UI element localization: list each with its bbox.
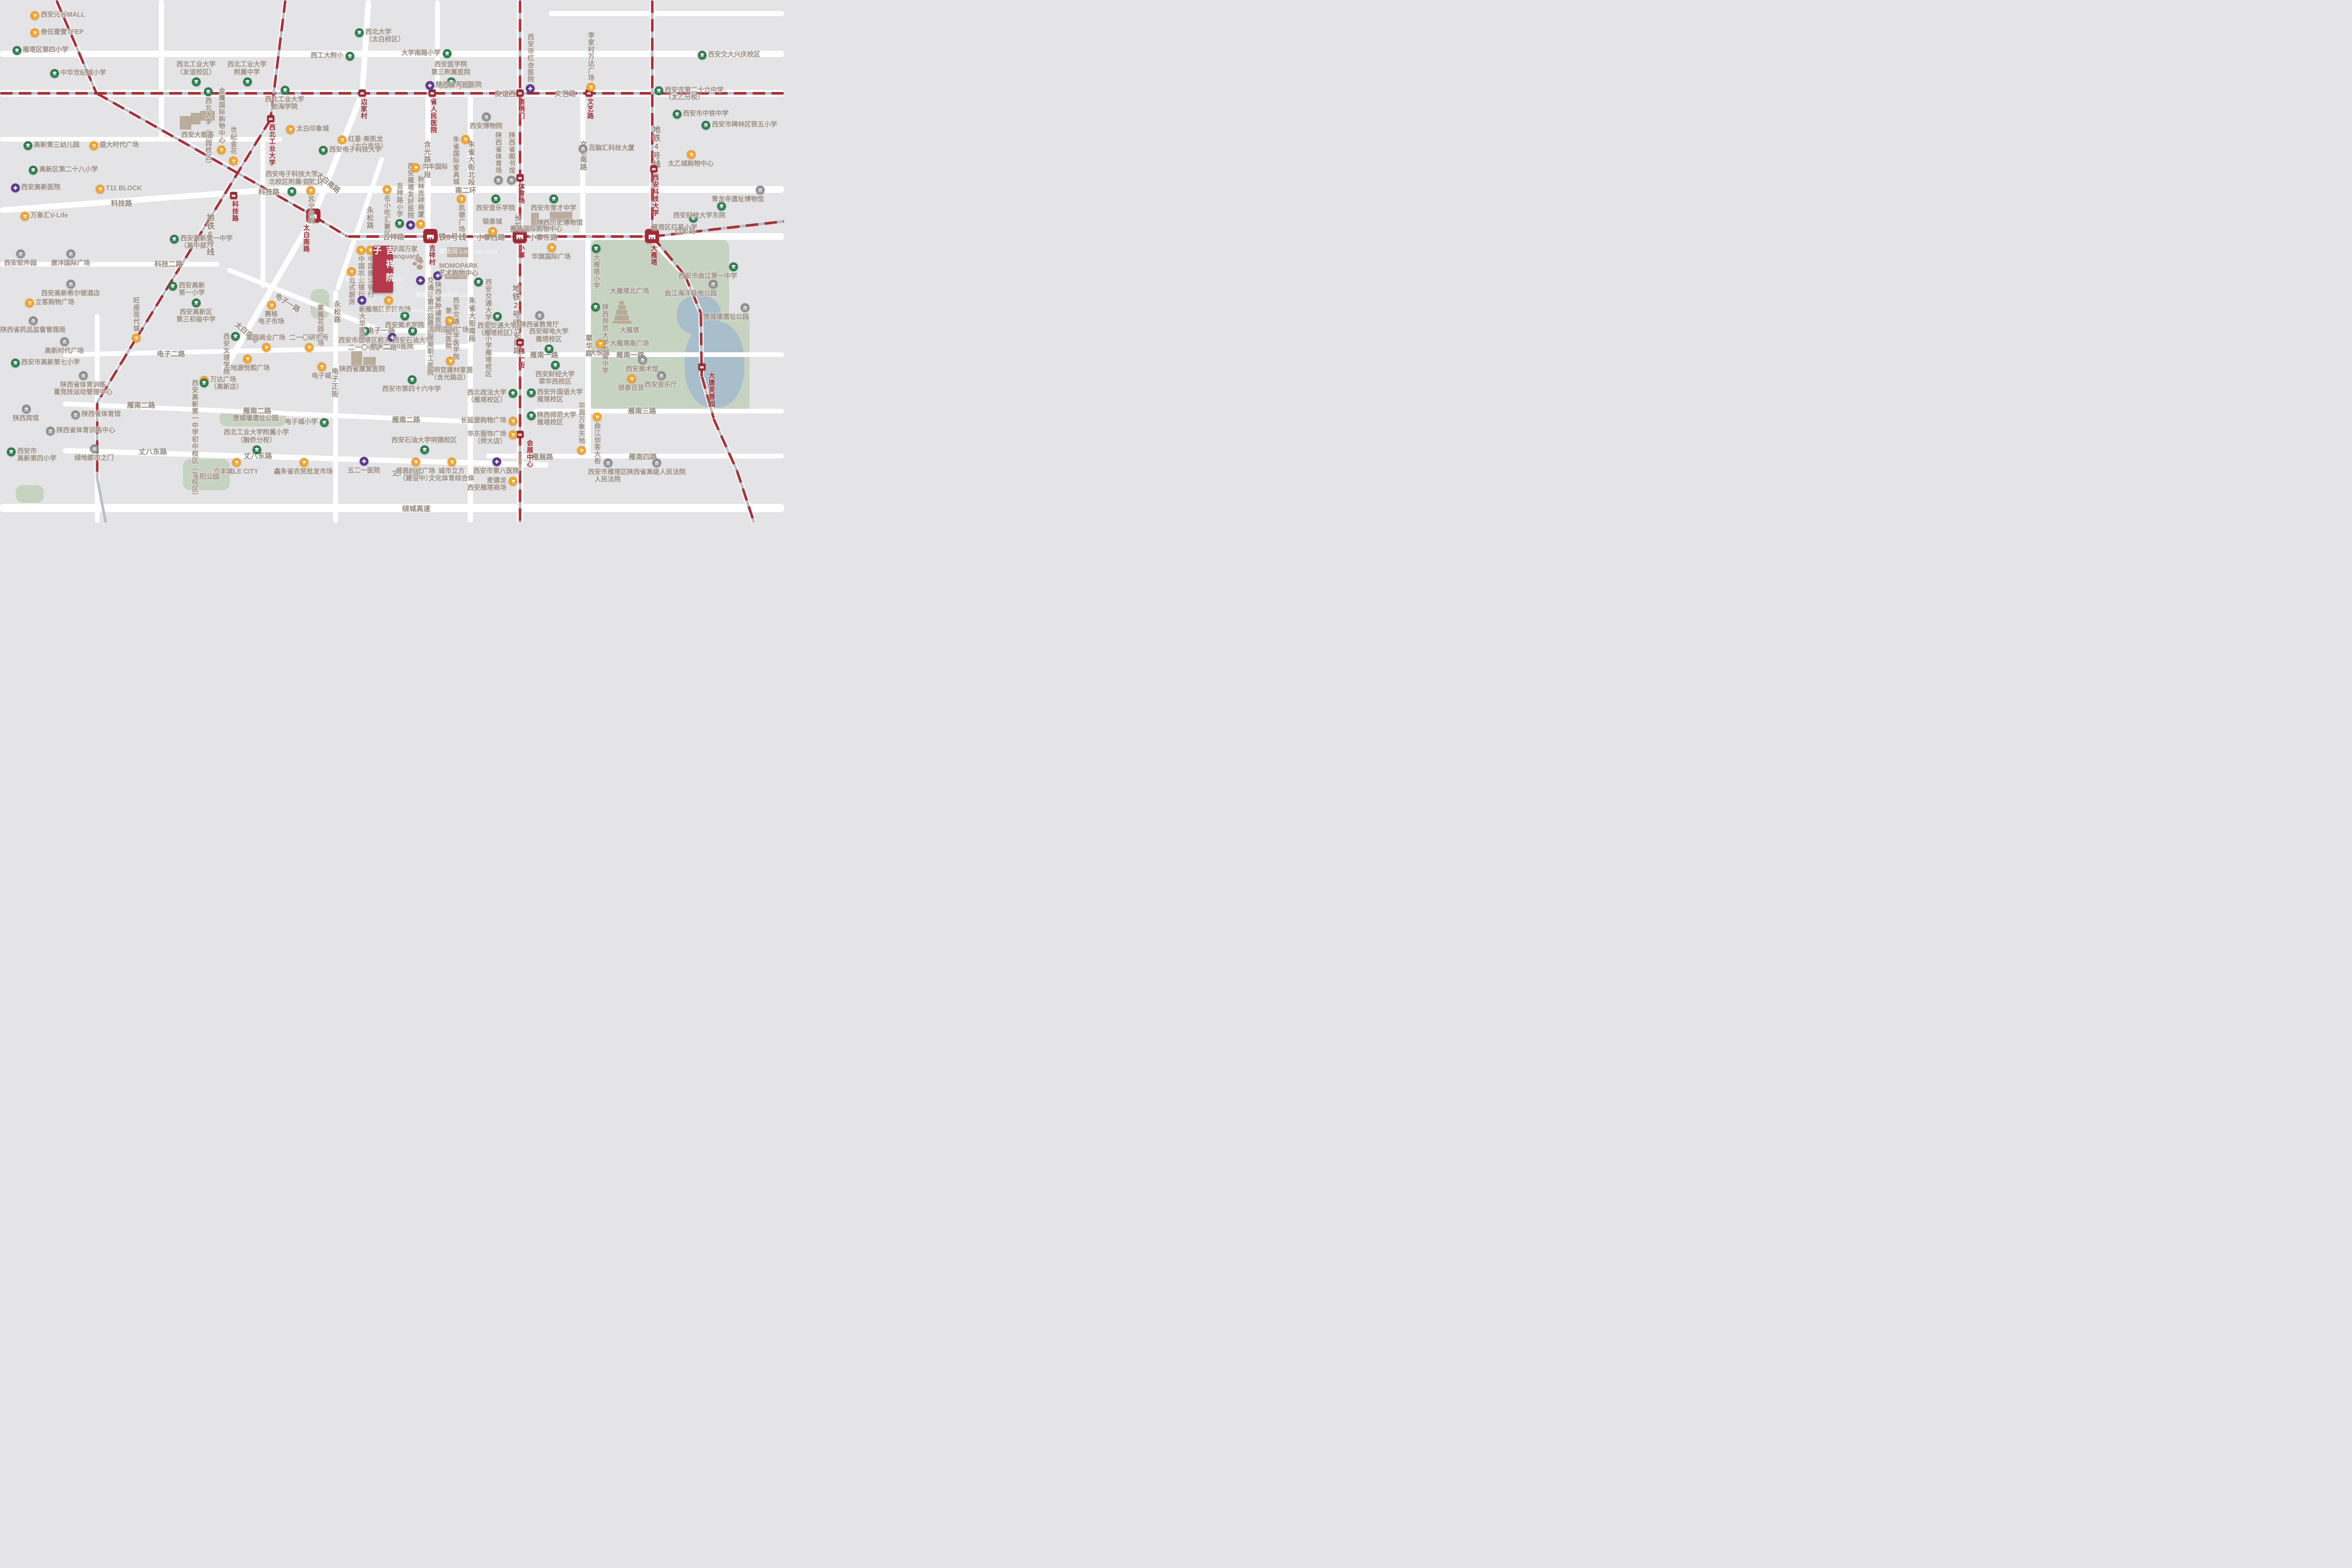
poi-school-icon[interactable] xyxy=(729,262,738,271)
road-label: 绕城高速 xyxy=(402,503,431,513)
poi-label: 西安市育才中学 xyxy=(531,204,577,212)
poi-label-group: 旺座现代城 xyxy=(132,297,139,332)
road-segment xyxy=(274,186,784,193)
poi-shop-icon[interactable] xyxy=(30,11,39,20)
poi-school-icon[interactable] xyxy=(592,244,601,253)
poi-label-group: 西北工业大学附属中学 xyxy=(227,61,267,76)
poi-shop-icon[interactable] xyxy=(447,457,456,466)
poi-label-group: 百脑汇科技大厦 xyxy=(589,144,635,152)
road-segment xyxy=(159,0,164,141)
poi-label-line2: （太白校区） xyxy=(365,36,405,43)
poi-label-line2: 翠华西校区 xyxy=(535,378,574,385)
metro-station-marker[interactable] xyxy=(359,89,366,97)
poi-label: 西安软件园 xyxy=(4,259,37,267)
poi-label: 西工大附小 xyxy=(310,52,343,59)
poi-school-icon[interactable] xyxy=(395,219,404,228)
poi-label-group: 朱雀国际家具城 xyxy=(452,136,459,186)
poi-label-group: 万达广场（高新店） xyxy=(210,376,243,391)
poi-label-group: 西安高新希尔顿酒店 xyxy=(41,290,100,297)
poi-shop-icon[interactable] xyxy=(217,145,226,154)
poi-shop-icon[interactable] xyxy=(96,185,105,193)
poi-gov-icon[interactable] xyxy=(66,280,75,289)
poi-school-icon[interactable] xyxy=(345,52,354,61)
poi-label: 赛格 xyxy=(264,310,278,318)
poi-shop-icon[interactable] xyxy=(596,339,605,348)
poi-label-group: 大学南路小学 xyxy=(401,49,441,56)
poi-label: 西安高新医院 xyxy=(21,183,61,191)
poi-label-line2: （高中部） xyxy=(180,242,233,249)
park-corner xyxy=(16,485,44,503)
poi-label-group: 西安高新第一中学（高中部） xyxy=(180,235,233,250)
poi-label-group: 陕西省体育训练重竞技运动管理中心 xyxy=(54,381,113,396)
metro-station-label: 科技路 xyxy=(230,201,240,222)
poi-label: 大雁塔 xyxy=(620,327,640,334)
road-segment xyxy=(311,92,365,217)
poi-gov-icon[interactable] xyxy=(79,371,88,380)
poi-hospital-icon[interactable] xyxy=(360,457,368,466)
poi-label: 唐沣国际广场 xyxy=(51,259,90,267)
poi-gov-icon[interactable] xyxy=(579,144,587,153)
poi-label: 麦德龙 xyxy=(487,477,506,484)
poi-shop-icon[interactable] xyxy=(267,301,276,309)
poi-label: 西安邮电大学 xyxy=(529,328,568,335)
poi-label-line2: （东校区） xyxy=(191,464,198,500)
metro-station-marker[interactable] xyxy=(429,89,436,97)
poi-label-group: 西安高新第一中学初中校区（东校区） xyxy=(191,379,198,500)
poi-label: 太乙城购物中心 xyxy=(668,160,714,167)
poi-label: 五二一医院 xyxy=(348,467,381,474)
poi-label: 西安市雁塔区 xyxy=(588,468,627,476)
poi-shop-icon[interactable] xyxy=(586,83,595,91)
poi-label-group: 金鹰国际购物中心 xyxy=(217,87,225,144)
poi-school-icon[interactable] xyxy=(168,282,177,291)
road-label: 雁南二路 xyxy=(392,414,420,424)
poi-food-icon[interactable] xyxy=(383,185,391,194)
poi-school-icon[interactable] xyxy=(491,194,500,203)
poi-shop-icon[interactable] xyxy=(262,343,271,352)
poi-label: 大学南路小学 xyxy=(401,49,441,56)
poi-label-group: 高新时代广场 xyxy=(44,347,84,354)
poi-label-group: 太乙城购物中心 xyxy=(668,160,714,167)
building-sketch xyxy=(180,116,192,130)
poi-label-group: 唐城墙遗址公园 xyxy=(703,313,749,320)
poi-label: 西安元谷MALL xyxy=(41,11,85,18)
poi-label: 秋林吉祥商厦 xyxy=(417,176,424,218)
poi-label-group: 陕西省教育厅 xyxy=(520,321,559,328)
poi-label-group: 西安电子科技大学 xyxy=(329,146,382,153)
poi-label: 李家村万达广场 xyxy=(587,32,594,82)
vanguard-paw-icon xyxy=(412,262,417,266)
poi-gov-icon[interactable] xyxy=(741,303,750,312)
poi-label-group: T11 BLOCK xyxy=(106,185,142,192)
poi-label: 西安高新希尔顿酒店 xyxy=(41,290,100,297)
road-label: 南二环 xyxy=(455,185,477,195)
building-sketch xyxy=(191,113,201,124)
poi-label: 绿地都市之门 xyxy=(74,454,113,462)
poi-gov-icon[interactable] xyxy=(535,311,544,320)
poi-label: 华润万象天地 xyxy=(578,402,585,444)
poi-label-group: 西安市红会医院 xyxy=(526,33,534,83)
poi-shop-icon[interactable] xyxy=(20,212,29,221)
poi-label-group: 立客购物广场 xyxy=(36,298,75,306)
poi-school-icon[interactable] xyxy=(252,445,261,454)
poi-school-icon[interactable] xyxy=(7,447,16,456)
poi-label: 雁塔区红星小学 xyxy=(651,224,697,231)
poi-hospital-icon[interactable] xyxy=(492,457,501,466)
poi-label: 高新时代广场 xyxy=(44,347,84,354)
poi-shop-icon[interactable] xyxy=(457,194,466,203)
metro-station-marker[interactable] xyxy=(516,174,524,181)
poi-shop-icon[interactable] xyxy=(132,333,141,342)
poi-label-group: 高新区第二十八小学 xyxy=(39,166,98,173)
poi-label: 太白印象城 xyxy=(296,125,329,132)
poi-hospital-icon[interactable] xyxy=(358,296,366,305)
poi-label: 西安市红会医院 xyxy=(526,33,534,83)
poi-label: 陕西师范大学附属中学 xyxy=(601,304,608,374)
poi-school-icon[interactable] xyxy=(673,110,682,119)
poi-label-group: 广丰国际 xyxy=(422,163,448,170)
poi-school-icon[interactable] xyxy=(545,344,554,353)
poi-school-icon[interactable] xyxy=(24,141,32,150)
metro-station-marker[interactable] xyxy=(230,192,237,199)
poi-label-group: 永阳公园 xyxy=(193,473,219,480)
poi-label-group: 西安市育才中学 xyxy=(531,204,577,212)
poi-label: 陕西省教育厅 xyxy=(520,321,559,328)
poi-gov-icon[interactable] xyxy=(71,410,80,419)
poi-school-icon[interactable] xyxy=(474,278,483,286)
poi-school-icon[interactable] xyxy=(320,418,329,427)
poi-shop-icon[interactable] xyxy=(416,220,425,228)
metro-station-label: 南稍门 xyxy=(516,98,526,120)
poi-label-group: 西安交大兴庆校区 xyxy=(708,51,760,58)
poi-gov-icon[interactable] xyxy=(638,355,647,364)
poi-school-icon[interactable] xyxy=(420,445,429,454)
poi-label-line2: （含光路店） xyxy=(427,374,473,381)
poi-label: 大雁塔北广场 xyxy=(610,287,649,295)
poi-label-line2: （融侨分校） xyxy=(224,436,289,444)
poi-shop-icon[interactable] xyxy=(243,354,252,363)
poi-label-group: 叁伍壹壹TFEP xyxy=(41,28,84,36)
poi-label: 红星·美凯龙 xyxy=(348,135,383,143)
project-marker[interactable]: 吉祥院子 xyxy=(373,246,393,293)
poi-label-line2: （高新店） xyxy=(210,383,243,390)
poi-shop-icon[interactable] xyxy=(509,477,517,486)
poi-label: 西安市第八医院 xyxy=(474,467,520,475)
road-segment xyxy=(260,139,265,287)
poi-label-group: MOMOPARK艺术购物中心 xyxy=(439,262,478,278)
poi-gov-icon[interactable] xyxy=(657,371,666,380)
poi-shop-icon[interactable] xyxy=(411,163,420,172)
metro-line-segment xyxy=(712,418,739,471)
poi-label-group: 凯德广场 xyxy=(457,204,465,233)
poi-school-icon[interactable] xyxy=(243,77,252,86)
poi-label-group: 万象汇V-Life xyxy=(31,212,68,219)
poi-label-group: 青龙寺遗址博物馆 xyxy=(711,195,764,203)
poi-label: 西北大学 xyxy=(365,28,391,36)
poi-hospital-icon[interactable] xyxy=(416,276,425,285)
poi-label-line2: 高新第四小学 xyxy=(17,455,56,462)
poi-gov-icon[interactable] xyxy=(29,316,38,325)
poi-hospital-icon[interactable] xyxy=(406,221,415,229)
poi-hospital-icon[interactable] xyxy=(425,81,434,90)
poi-school-icon[interactable] xyxy=(698,51,707,60)
poi-school-icon[interactable] xyxy=(192,298,201,307)
poi-label-group: 西安高新医院 xyxy=(21,183,61,191)
poi-label-group: 西安邮电大学雁塔校区 xyxy=(529,328,568,343)
poi-school-icon[interactable] xyxy=(355,28,364,37)
poi-school-icon[interactable] xyxy=(551,361,560,370)
poi-label: 万象汇V-Life xyxy=(31,212,68,219)
poi-school-icon[interactable] xyxy=(319,146,328,155)
poi-shop-icon[interactable] xyxy=(305,343,314,352)
poi-shop-icon[interactable] xyxy=(411,457,420,466)
metro-station-label: 小寨 xyxy=(516,245,526,259)
poi-label-line2: （雁塔校区） xyxy=(477,329,516,337)
poi-school-icon[interactable] xyxy=(200,378,209,387)
poi-shop-icon[interactable] xyxy=(299,458,308,467)
poi-school-icon[interactable] xyxy=(549,194,558,203)
poi-shop-icon[interactable] xyxy=(286,125,295,134)
poi-label: 陕西省高级人民法院 xyxy=(627,468,686,476)
poi-label-group: 陕西省体育馆 xyxy=(82,410,121,418)
poi-label: 西安电子科技大学 xyxy=(329,146,382,153)
poi-shop-icon[interactable] xyxy=(232,458,241,467)
poi-label-line2: 雁塔校区 xyxy=(529,336,568,343)
poi-school-icon[interactable] xyxy=(192,77,201,86)
poi-label-group: 陕西省体育训练中心 xyxy=(56,426,116,434)
road-label: 含光路中段 xyxy=(421,141,432,179)
poi-shop-icon[interactable] xyxy=(547,243,556,252)
poi-label: 陕西省体育训练 xyxy=(60,381,106,388)
poi-label-group: 西安石油大学明德校区 xyxy=(391,436,457,444)
metro-station-marker[interactable] xyxy=(516,89,524,97)
poi-label-group: 阳阳国际广场 xyxy=(430,326,469,333)
poi-school-icon[interactable] xyxy=(50,69,59,78)
poi-school-icon[interactable] xyxy=(204,87,213,96)
poi-label: 陕西省康复医院 xyxy=(339,365,385,373)
road-label: 雁南二路 xyxy=(127,399,155,410)
poi-label-line2: 小学雁塔校区 xyxy=(484,335,491,377)
poi-school-icon[interactable] xyxy=(287,187,296,196)
poi-shop-icon[interactable] xyxy=(229,156,238,165)
poi-label-group: 高新第三幼儿园 xyxy=(34,141,80,148)
poi-label: 赛格国际购物中心 xyxy=(510,225,562,233)
road-segment xyxy=(0,504,784,512)
poi-shop-icon[interactable] xyxy=(306,186,315,195)
poi-hospital-icon[interactable] xyxy=(526,84,535,93)
poi-label: 西安外国语大学 xyxy=(537,388,583,396)
road-label: 永松路 xyxy=(331,301,342,324)
poi-label-group: 陕西师范大学雁塔校区 xyxy=(537,411,577,426)
metro-station-marker[interactable] xyxy=(267,115,274,122)
poi-gov-icon[interactable] xyxy=(756,186,765,194)
poi-label: 西安高新 xyxy=(179,282,205,289)
poi-label-group: 西安博物院 xyxy=(470,122,503,130)
poi-label-group: 苏宁易购 xyxy=(307,196,314,224)
poi-school-icon[interactable] xyxy=(591,303,600,312)
poi-label-group: 西安市中铁中学 xyxy=(683,110,729,117)
metro-station-marker[interactable] xyxy=(516,339,524,346)
road-label: 电子二路 xyxy=(157,348,185,359)
poi-label: 大雁塔南广场 xyxy=(610,340,649,347)
poi-gov-icon[interactable] xyxy=(16,249,25,258)
poi-shop-icon[interactable] xyxy=(687,150,696,159)
poi-school-icon[interactable] xyxy=(527,388,536,397)
poi-label-line2: 第一小学 xyxy=(179,289,205,296)
poi-label: 西安美术学院 xyxy=(385,321,424,329)
poi-label: 西北工业大学 xyxy=(176,61,215,68)
road-label: 朱雀大街南段 xyxy=(466,297,477,342)
poi-label: 陕西师范大学 xyxy=(537,411,577,419)
poi-label: 旺座现代城 xyxy=(132,297,140,332)
metro-station-marker[interactable] xyxy=(650,165,658,172)
poi-label: 西安音乐厅 xyxy=(644,381,677,388)
vanguard-paw-icon xyxy=(417,264,423,270)
poi-shop-icon[interactable] xyxy=(461,135,470,144)
poi-label-group: 太白印象城 xyxy=(296,125,329,132)
road-label: 科技路 xyxy=(111,198,132,208)
poi-label-line2: 雁塔校区 xyxy=(537,396,583,403)
metro-station-label: 吉祥村 xyxy=(427,245,437,266)
poi-hospital-icon[interactable] xyxy=(11,183,20,192)
poi-label: 新大华医院 xyxy=(358,306,365,341)
poi-shop-icon[interactable] xyxy=(25,298,34,307)
watermark: 楼盘网 LouPan.com xyxy=(381,306,439,315)
poi-label: 西北工业大学 xyxy=(265,96,304,103)
poi-school-icon[interactable] xyxy=(281,86,290,95)
poi-label: 中华世纪城小学 xyxy=(61,69,107,76)
poi-label-group: 盛大时代广场 xyxy=(100,141,139,148)
poi-label: 盛大时代广场 xyxy=(100,141,139,148)
poi-school-icon[interactable] xyxy=(509,389,517,398)
poi-shop-icon[interactable] xyxy=(89,141,98,150)
poi-label-group: 曲江创客大街 xyxy=(593,422,600,465)
pagoda-sketch xyxy=(618,305,626,309)
poi-label-group: 新大华医院 xyxy=(358,306,365,341)
poi-label-group: 西安大都荟 xyxy=(181,131,214,139)
road-label: 丈八东路 xyxy=(139,446,167,456)
poi-gov-icon[interactable] xyxy=(652,458,661,467)
poi-label-group: 西安音乐学院 xyxy=(476,204,515,212)
poi-shop-icon[interactable] xyxy=(30,28,39,37)
poi-label: 西安市第四十六中学 xyxy=(382,385,441,393)
poi-label: 朱雀国际家具城 xyxy=(452,136,459,186)
poi-label-group: 西北大学（太白校区） xyxy=(365,28,405,43)
poi-gov-icon[interactable] xyxy=(709,280,718,289)
poi-label: 青龙寺遗址博物馆 xyxy=(711,195,764,203)
poi-label-group: 中华世纪城小学 xyxy=(61,69,107,76)
poi-label-group: 西安市高新第四小学 xyxy=(17,447,56,463)
poi-label-group: 绿地都市之门 xyxy=(74,454,113,462)
poi-school-icon[interactable] xyxy=(29,166,38,175)
poi-school-icon[interactable] xyxy=(408,375,417,384)
metro-line-segment xyxy=(518,0,521,523)
poi-label-group: 长延堡购物广场 xyxy=(460,417,506,424)
poi-label: 万达广场 xyxy=(210,376,236,383)
poi-shop-icon[interactable] xyxy=(488,227,497,236)
poi-label-group: 名小吃汇聚区 xyxy=(383,195,390,237)
poi-label-group: 陕西省人民医院 xyxy=(436,81,482,88)
poi-label: 长延堡购物广场 xyxy=(460,417,506,424)
poi-label-line2: 附属中学 xyxy=(227,68,267,76)
poi-label: 电子城 xyxy=(312,372,331,379)
poi-label: 百脑汇科技大厦 xyxy=(589,144,635,152)
metro-station-marker[interactable] xyxy=(698,363,706,371)
poi-shop-icon[interactable] xyxy=(317,362,326,371)
metro-line-label: 地铁4号线 xyxy=(651,125,662,168)
poi-shop-icon[interactable] xyxy=(338,135,347,144)
poi-label: MOMOPARK xyxy=(439,262,478,270)
building-sketch xyxy=(351,351,362,367)
metro-station-label: 大雁塔 xyxy=(649,245,659,266)
metro-station-marker[interactable] xyxy=(423,229,437,243)
poi-gov-icon[interactable] xyxy=(507,176,516,185)
poi-label-group: 西安市第八医院 xyxy=(474,467,520,475)
road-label: 小寨东路 xyxy=(529,232,558,242)
poi-school-icon[interactable] xyxy=(493,312,502,321)
poi-shop-icon[interactable] xyxy=(577,446,586,455)
poi-label: 西安科技大学东院 xyxy=(673,212,725,219)
road-label: 朱雀大街北段 xyxy=(465,141,476,186)
poi-gov-icon[interactable] xyxy=(494,176,503,185)
poi-label-group: 西安软件园 xyxy=(4,259,37,267)
poi-label: 西安市第二十六中学 xyxy=(665,86,724,94)
poi-school-icon[interactable] xyxy=(443,49,452,58)
poi-gov-icon[interactable] xyxy=(66,249,75,258)
poi-label-group: 西安市碑林区铁五小学 xyxy=(712,121,777,128)
poi-school-icon[interactable] xyxy=(13,46,21,55)
poi-shop-icon[interactable] xyxy=(445,316,454,325)
poi-shop-icon[interactable] xyxy=(509,417,517,425)
poi-gov-icon[interactable] xyxy=(604,458,613,467)
poi-shop-icon[interactable] xyxy=(627,374,636,383)
poi-gov-icon[interactable] xyxy=(46,426,55,435)
poi-gov-icon[interactable] xyxy=(60,337,69,346)
poi-school-icon[interactable] xyxy=(11,359,20,367)
poi-school-icon[interactable] xyxy=(527,411,536,420)
poi-label: 唐城墙遗址公园 xyxy=(703,313,749,320)
poi-label-group: 西安文理学院 xyxy=(222,333,229,375)
poi-label-group: 五二一医院 xyxy=(348,467,381,474)
poi-shop-icon[interactable] xyxy=(356,246,365,255)
poi-label-group: 立丰城LE CITY xyxy=(214,468,258,475)
poi-school-icon[interactable] xyxy=(654,86,663,95)
poi-label: 立丰城LE CITY xyxy=(214,468,258,475)
metro-station-label: 西北工业大学 xyxy=(267,124,277,166)
poi-shop-icon[interactable] xyxy=(593,412,602,421)
poi-gov-icon[interactable] xyxy=(22,405,31,413)
poi-label-group: 秋林吉祥商厦 xyxy=(417,176,424,218)
poi-label-group: 陕西省体育场 xyxy=(494,132,501,174)
poi-school-icon[interactable] xyxy=(717,202,726,211)
poi-school-icon[interactable] xyxy=(170,235,179,244)
poi-school-icon[interactable] xyxy=(231,332,240,341)
poi-shop-icon[interactable] xyxy=(384,296,393,305)
poi-gov-icon[interactable] xyxy=(90,444,99,453)
poi-school-icon[interactable] xyxy=(701,121,710,130)
poi-gov-icon[interactable] xyxy=(482,112,491,121)
watermark: 楼盘网 LouPan.com xyxy=(416,290,474,299)
poi-label: 大雁塔小学 xyxy=(592,254,599,290)
poi-label: 陕西省人民医院 xyxy=(436,81,482,88)
poi-label: 高新第三幼儿园 xyxy=(34,141,80,148)
road-label: 雁展路 xyxy=(532,451,554,462)
poi-label-line2: （友谊校区） xyxy=(176,68,215,76)
poi-label-group: 西北工业大学航海学院 xyxy=(265,96,304,111)
pagoda-sketch xyxy=(615,315,629,320)
poi-label-group: 西安高新区第三初级中学 xyxy=(176,308,215,324)
poi-shop-icon[interactable] xyxy=(509,430,517,439)
